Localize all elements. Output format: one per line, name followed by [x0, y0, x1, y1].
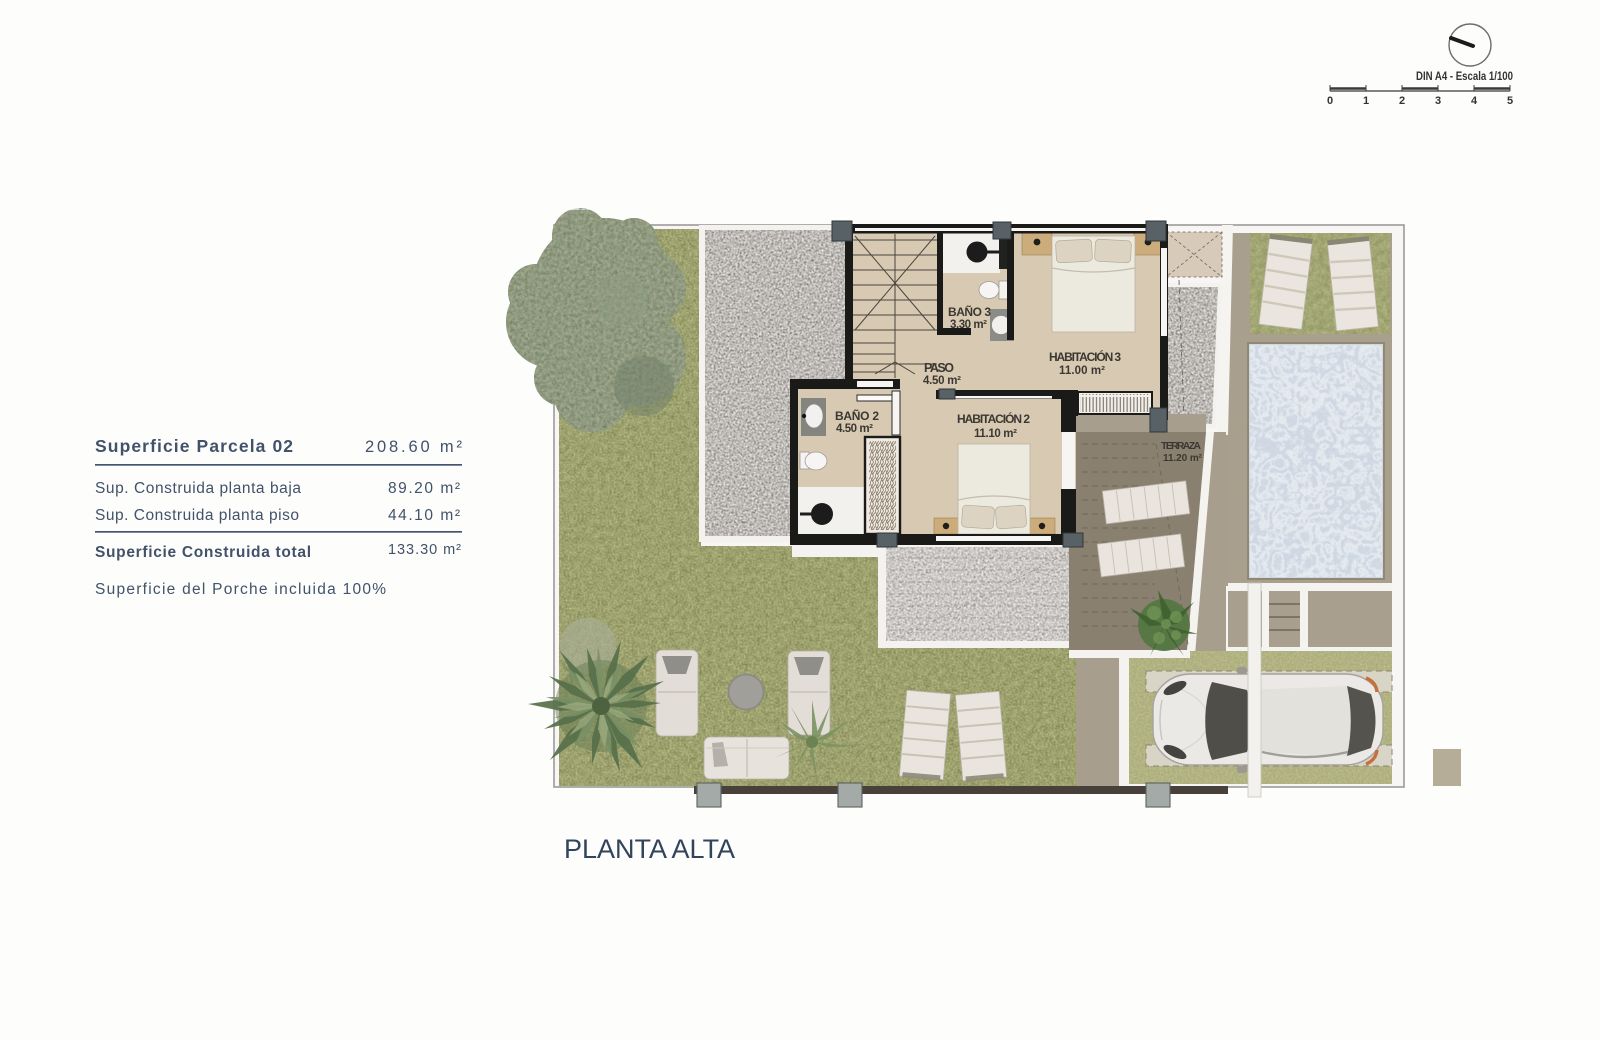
svg-text:4.50 m²: 4.50 m²: [923, 375, 961, 387]
svg-text:3.30 m²: 3.30 m²: [950, 319, 987, 331]
svg-text:11.00 m²: 11.00 m²: [1059, 365, 1105, 377]
svg-text:0: 0: [1327, 95, 1333, 107]
svg-text:Sup. Construida planta baja: Sup. Construida planta baja: [95, 480, 301, 497]
svg-text:5: 5: [1507, 95, 1513, 107]
svg-text:4.50 m²: 4.50 m²: [836, 423, 873, 435]
svg-text:3: 3: [1435, 95, 1441, 107]
svg-text:PLANTA ALTA: PLANTA ALTA: [564, 834, 735, 864]
svg-text:Superficie Parcela 02: Superficie Parcela 02: [95, 436, 293, 456]
svg-text:4: 4: [1471, 95, 1478, 107]
svg-text:11.10 m²: 11.10 m²: [974, 428, 1017, 440]
svg-text:208.60 m²: 208.60 m²: [365, 438, 463, 456]
svg-text:44.10 m²: 44.10 m²: [388, 507, 460, 524]
svg-text:Superficie Construida total: Superficie Construida total: [95, 544, 311, 561]
svg-text:11.20 m²: 11.20 m²: [1163, 453, 1203, 464]
svg-text:TERRAZA: TERRAZA: [1161, 440, 1201, 452]
svg-text:PASO: PASO: [924, 361, 954, 375]
svg-text:HABITACIÓN 3: HABITACIÓN 3: [1049, 349, 1121, 364]
svg-text:Sup. Construida planta piso: Sup. Construida planta piso: [95, 507, 299, 524]
svg-text:BAÑO 3: BAÑO 3: [948, 304, 991, 319]
svg-text:89.20 m²: 89.20 m²: [388, 480, 460, 497]
svg-text:HABITACIÓN 2: HABITACIÓN 2: [957, 411, 1030, 426]
svg-text:2: 2: [1399, 95, 1405, 107]
svg-text:DIN A4 - Escala 1/100: DIN A4 - Escala 1/100: [1416, 71, 1513, 83]
svg-text:1: 1: [1363, 95, 1369, 107]
svg-text:133.30 m²: 133.30 m²: [388, 542, 461, 558]
svg-text:Superficie del Porche incluida: Superficie del Porche incluida 100%: [95, 581, 386, 598]
svg-text:BAÑO 2: BAÑO 2: [835, 408, 879, 423]
